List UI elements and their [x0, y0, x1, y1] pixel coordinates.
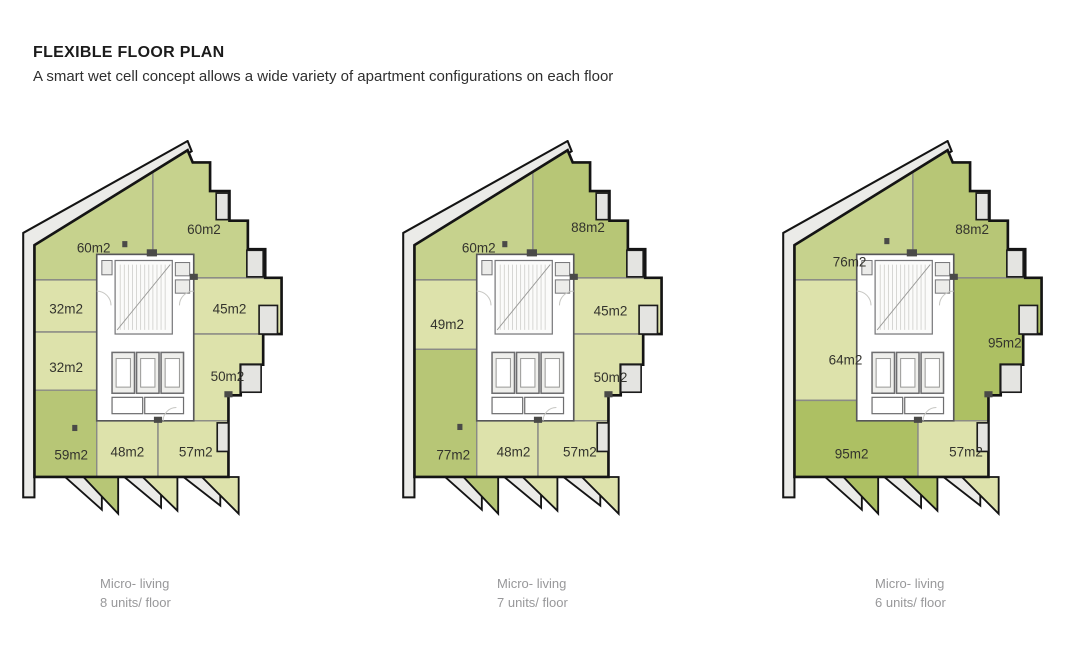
floor-plan-1-svg: 60m2 60m2 32m2 45m2 32m2 50m2 59m2 48m2 … — [18, 140, 298, 526]
unit-area-label: 57m2 — [949, 445, 983, 460]
unit-area-label: 95m2 — [835, 447, 869, 462]
unit-area-label: 60m2 — [187, 222, 221, 237]
unit-area-label: 57m2 — [563, 445, 597, 460]
door-mark — [457, 424, 462, 430]
floor-plan-3-svg: 76m2 88m2 64m2 95m2 95m2 57m2 — [778, 140, 1058, 526]
unit-area-label: 60m2 — [462, 240, 496, 255]
unit-area-label: 48m2 — [111, 445, 145, 460]
unit-area-label: 88m2 — [955, 222, 989, 237]
unit-area-label: 49m2 — [430, 317, 464, 332]
caption-line2: 6 units/ floor — [875, 593, 946, 612]
plan-1-caption: Micro- living 8 units/ floor — [100, 574, 171, 612]
door-mark — [884, 238, 889, 244]
floor-plan-2: 60m2 88m2 49m2 45m2 50m2 77m2 48m2 57m2 — [398, 140, 678, 531]
unit-area-label: 32m2 — [49, 302, 83, 317]
door-mark — [122, 241, 127, 247]
unit-area-label: 59m2 — [54, 448, 88, 463]
header: FLEXIBLE FLOOR PLAN A smart wet cell con… — [33, 44, 613, 85]
page: FLEXIBLE FLOOR PLAN A smart wet cell con… — [0, 0, 1080, 647]
unit-area-label: 45m2 — [594, 304, 628, 319]
caption-line1: Micro- living — [497, 574, 568, 593]
unit-area-label: 60m2 — [77, 240, 111, 255]
floor-plan-3: 76m2 88m2 64m2 95m2 95m2 57m2 — [778, 140, 1058, 531]
page-subtitle: A smart wet cell concept allows a wide v… — [33, 68, 613, 85]
unit-area-label: 50m2 — [594, 370, 628, 385]
unit-area-label: 32m2 — [49, 360, 83, 375]
unit-area-label: 50m2 — [211, 369, 245, 384]
floor-plan-2-svg: 60m2 88m2 49m2 45m2 50m2 77m2 48m2 57m2 — [398, 140, 678, 526]
unit-area-label: 45m2 — [213, 302, 247, 317]
page-title: FLEXIBLE FLOOR PLAN — [33, 44, 613, 62]
floor-plan-1: 60m2 60m2 32m2 45m2 32m2 50m2 59m2 48m2 … — [18, 140, 298, 531]
unit-area-label: 77m2 — [436, 448, 470, 463]
unit-59m2 — [34, 390, 96, 477]
caption-line2: 8 units/ floor — [100, 593, 171, 612]
unit-area-label: 88m2 — [571, 220, 605, 235]
door-mark — [72, 425, 77, 431]
plan-3-caption: Micro- living 6 units/ floor — [875, 574, 946, 612]
unit-area-label: 48m2 — [497, 445, 531, 460]
plan-2-caption: Micro- living 7 units/ floor — [497, 574, 568, 612]
unit-area-label: 64m2 — [829, 353, 863, 368]
door-mark — [502, 241, 507, 247]
unit-49m2 — [414, 280, 476, 349]
caption-line1: Micro- living — [100, 574, 171, 593]
unit-area-label: 95m2 — [988, 335, 1022, 350]
unit-64m2 — [794, 280, 856, 400]
caption-line1: Micro- living — [875, 574, 946, 593]
unit-area-label: 76m2 — [833, 255, 867, 270]
unit-area-label: 57m2 — [179, 445, 213, 460]
caption-line2: 7 units/ floor — [497, 593, 568, 612]
